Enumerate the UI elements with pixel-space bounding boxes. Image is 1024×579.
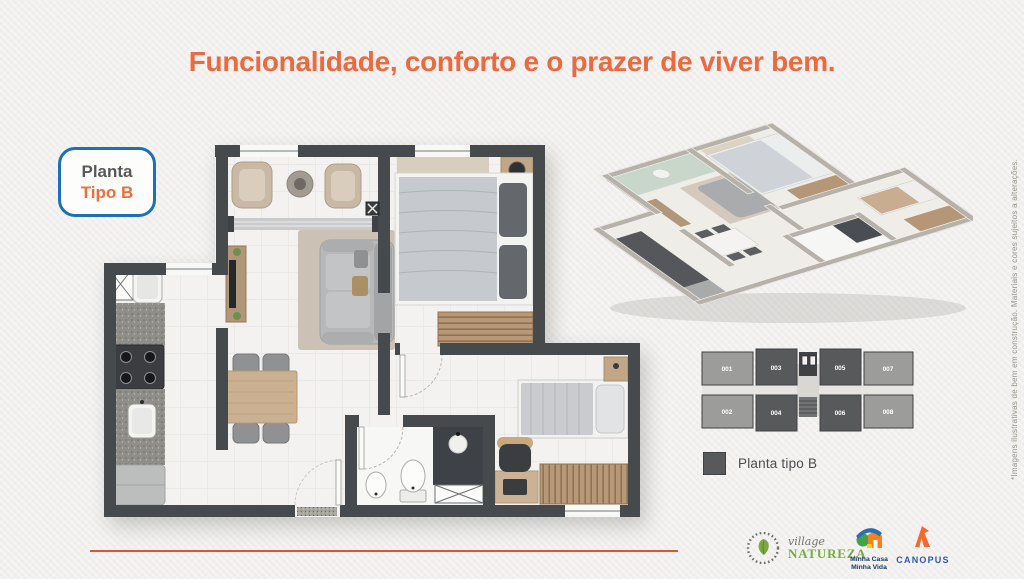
wardrobe-2 [540,464,628,504]
building-key-plan: 001 003 005 007 002 004 006 008 [700,344,915,436]
keyplan-legend: Planta tipo B [703,452,817,475]
floor-plan-3d [593,100,973,332]
balcony-armchair [232,162,272,208]
single-bed [518,380,628,438]
page-title: Funcionalidade, conforto e o prazer de v… [0,46,1024,78]
legend-swatch [703,452,726,475]
keyplan-stairs [799,397,817,417]
nightstand-2 [604,357,628,381]
sliding-door [228,216,378,232]
canopus-label: CANOPUS [892,555,954,565]
canopus-logo: CANOPUS [892,524,954,565]
balcony-armchair-2 [325,164,361,208]
disclaimer-text: *Imagens ilustrativas de bem em construç… [1010,100,1019,480]
keyplan-unit-004-label: 004 [771,410,782,417]
desk-chair [497,437,533,472]
keyplan-unit-008-label: 008 [883,409,894,416]
desk [495,471,538,503]
mcmv-logo-line2: Minha Vida [845,564,893,572]
keyplan-unit-003-label: 003 [771,365,782,372]
minha-casa-minha-vida-logo: Minha Casa Minha Vida [845,524,893,571]
tv-cabinet [226,246,246,322]
keyplan-elevators [799,352,817,376]
keyplan-unit-007-label: 007 [883,366,894,373]
mcmv-logo-line1: Minha Casa [845,556,893,564]
keyplan-unit-006-label: 006 [835,410,846,417]
village-natureza-emblem-icon [743,526,783,570]
balcony-coffee-table [287,171,313,197]
toilet [400,460,426,502]
fridge [110,465,165,505]
minha-casa-minha-vida-icon [854,524,884,550]
bathroom-vanity [433,427,483,485]
footer-divider [90,550,678,552]
brochure-page: Funcionalidade, conforto e o prazer de v… [0,0,1024,579]
canopus-icon [912,524,934,548]
keyplan-unit-001-label: 001 [722,366,733,373]
laundry-sink [133,271,162,303]
double-bed [395,173,533,305]
floor-plan-2d [100,138,660,520]
duct-marker [366,202,379,215]
keyplan-unit-002-label: 002 [722,409,733,416]
stove [112,345,164,389]
plan3d-shadow [610,293,966,323]
shower-box [435,485,483,503]
keyplan-unit-005-label: 005 [835,365,846,372]
bidet [366,472,386,498]
legend-label: Planta tipo B [738,456,817,471]
master-closet [438,312,533,346]
